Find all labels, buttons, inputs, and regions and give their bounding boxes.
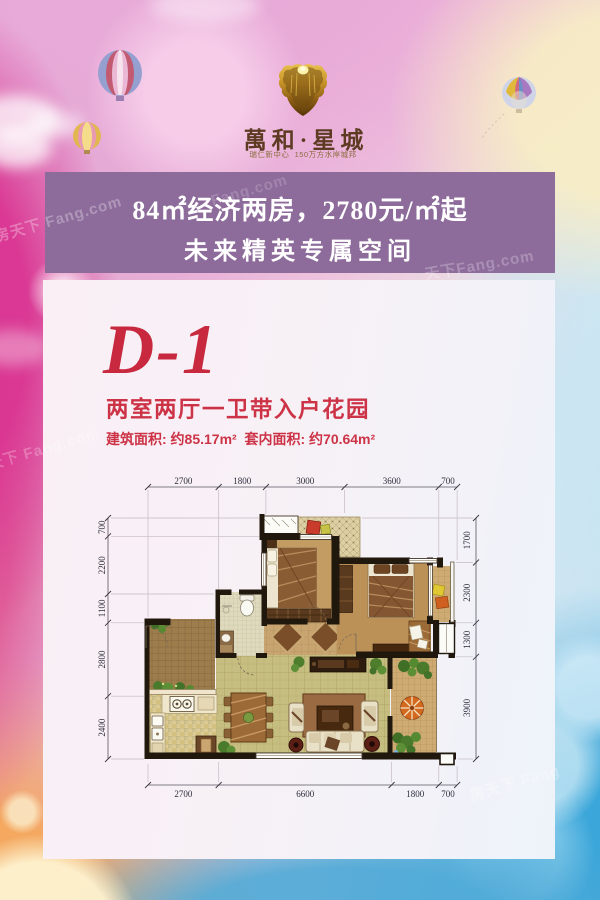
svg-text:3600: 3600	[383, 476, 402, 486]
svg-text:2400: 2400	[97, 718, 107, 737]
svg-text:1800: 1800	[233, 476, 252, 486]
svg-text:1800: 1800	[406, 789, 425, 799]
svg-text:700: 700	[441, 476, 455, 486]
svg-text:3000: 3000	[296, 476, 315, 486]
svg-text:700: 700	[97, 520, 107, 534]
svg-text:1100: 1100	[97, 599, 107, 617]
svg-text:2300: 2300	[462, 583, 472, 602]
svg-text:3900: 3900	[462, 698, 472, 717]
svg-text:6600: 6600	[296, 789, 315, 799]
svg-text:1700: 1700	[462, 531, 472, 550]
svg-text:700: 700	[441, 789, 455, 799]
svg-text:2800: 2800	[97, 650, 107, 669]
svg-text:2200: 2200	[97, 556, 107, 575]
svg-text:2700: 2700	[174, 789, 193, 799]
svg-text:1300: 1300	[462, 630, 472, 649]
svg-text:2700: 2700	[174, 476, 193, 486]
